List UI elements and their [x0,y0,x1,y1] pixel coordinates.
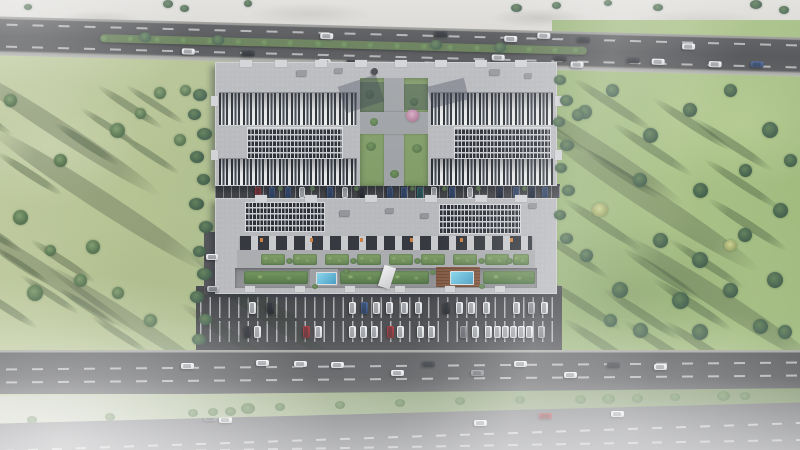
hedge-west [193,246,206,257]
hedge-east [560,95,573,106]
car-lower-road [611,411,624,417]
hedge-east [560,233,573,244]
car-main-road [331,362,344,368]
median2-bush [395,399,405,407]
hedge-east [560,140,574,151]
hedge-west [199,314,212,325]
car-main-road [471,370,484,376]
car-lower-road [219,417,232,423]
car-access-lane [207,286,219,292]
lane-marking [0,439,800,450]
hedge-east [555,163,567,173]
car-access-lane [206,254,218,260]
median2-bush [740,392,750,400]
car-main-road [294,361,307,367]
median2-bush [632,394,643,403]
hedge-west [197,268,212,280]
hedge-west [192,334,206,345]
median2-bush [105,413,115,421]
hedge-east [553,117,565,127]
median2-bush [670,393,680,401]
hedge-west [190,151,204,163]
median2-bush [455,397,465,405]
hedge-west [199,221,213,233]
median2-bush [241,403,255,414]
car-main-road [181,363,194,369]
aerial-render [0,0,800,450]
median2-bush [275,403,285,411]
median2-bush [335,401,345,409]
hedge-east [562,185,575,196]
median2-bush [208,408,218,416]
car-main-road [514,361,527,367]
median2-bush [188,409,198,417]
car-main-road [422,361,435,367]
hedge-west [189,198,204,210]
median2-bush [602,394,615,404]
car-main-road [607,362,620,368]
median2-bush [225,407,236,416]
hedge-west [188,109,201,120]
hedge-east [554,75,566,85]
main-road [0,350,800,394]
car-main-road [391,370,404,376]
car-lower-road [474,420,487,426]
car-main-road [654,364,667,370]
car-main-road [256,360,269,366]
hedge-west [190,291,204,303]
median2-bush [717,391,730,401]
median2-bush [515,396,525,404]
car-main-road [564,372,577,378]
hedge-east [554,210,566,220]
median2-bush [575,395,586,404]
car-lower-road [539,413,552,419]
hedge-west [193,89,207,101]
hedge-west [197,174,210,185]
hedge-west [197,128,212,140]
